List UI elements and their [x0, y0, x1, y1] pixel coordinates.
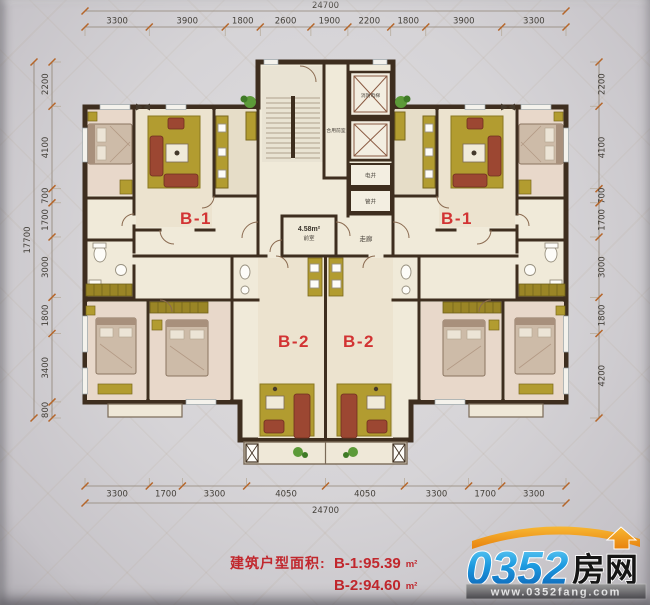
b2-area-value: B-2:94.60m² — [334, 577, 417, 594]
logo-arrow-icon — [607, 527, 636, 549]
floor-plan-photo: 消防电梯 电井 管井 合用前室 走廊 4.58m² 前室 — [0, 0, 650, 605]
dim-label: 1800 — [598, 305, 608, 327]
logo-name: 房网 — [572, 551, 638, 588]
dim-label: 1700 — [474, 490, 496, 500]
dim-label: 3300 — [204, 490, 226, 500]
floor-plan-drawing: 消防电梯 电井 管井 合用前室 走廊 4.58m² 前室 — [0, 0, 650, 605]
dim-label: 1700 — [598, 209, 608, 231]
dim-label: 2200 — [598, 73, 608, 95]
dim-label: 17700 — [23, 226, 33, 253]
area-caption: 建筑户型面积: — [230, 555, 326, 571]
dim-label: 1700 — [41, 209, 51, 231]
plant-icon — [241, 96, 248, 103]
dim-label: 1800 — [232, 17, 254, 27]
dim-label: 3300 — [426, 490, 448, 500]
dim-label: 1800 — [41, 305, 51, 327]
balcony — [108, 404, 182, 417]
logo: 0352 房网 www.0352fang.com — [466, 526, 646, 599]
logo-url: www.0352fang.com — [490, 587, 621, 599]
passenger-elevator-shaft — [350, 120, 391, 160]
dim-label: 3400 — [41, 357, 51, 379]
dim-label: 1800 — [397, 17, 419, 27]
dim-label: 800 — [41, 402, 51, 418]
fire-elevator-shaft: 消防电梯 — [350, 72, 391, 116]
footer-area-text: 建筑户型面积: B-1:95.39m² B-2:94.60m² — [230, 555, 417, 594]
dim-label: 3300 — [106, 490, 128, 500]
dim-label: 2200 — [358, 17, 380, 27]
pipe-shaft-label: 管井 — [365, 198, 377, 206]
fire-elevator-label: 消防电梯 — [361, 92, 380, 99]
vestibule-area-label: 4.58m² — [298, 226, 321, 233]
unit-label-b2-right: B-2 — [343, 332, 375, 351]
unit-label-b2-left: B-2 — [278, 332, 310, 351]
dim-label: 4200 — [598, 365, 608, 387]
shared-vestibule-label: 合用前室 — [326, 127, 345, 134]
corridor-label: 走廊 — [360, 234, 374, 243]
dim-label: 1700 — [155, 490, 177, 500]
dim-label: 3300 — [106, 17, 128, 27]
pipe-shaft: 管井 — [350, 190, 391, 212]
dim-label: 700 — [41, 188, 51, 204]
electric-shaft-label: 电井 — [365, 172, 377, 180]
unit-label-b1-left: B-1 — [180, 209, 212, 228]
dim-label: 1900 — [319, 17, 341, 27]
electric-shaft: 电井 — [350, 164, 391, 186]
unit-label-b1-right: B-1 — [441, 209, 473, 228]
dim-label: 3900 — [453, 17, 475, 27]
plant-icon — [343, 452, 349, 458]
plant-icon — [302, 452, 308, 458]
dim-label: 4100 — [41, 137, 51, 159]
plant-icon — [348, 447, 358, 457]
dim-label: 4100 — [598, 137, 608, 159]
dim-label: 24700 — [312, 1, 339, 11]
plant-icon — [293, 447, 303, 457]
b1-area-value: B-1:95.39m² — [334, 555, 417, 572]
dim-label: 2200 — [41, 73, 51, 95]
dim-label: 2600 — [275, 17, 297, 27]
dim-label: 3000 — [598, 256, 608, 278]
balcony-center — [244, 442, 407, 464]
dim-label: 3000 — [41, 256, 51, 278]
dim-label: 700 — [598, 188, 608, 204]
dim-label: 4050 — [354, 490, 376, 500]
sofa-set — [148, 116, 200, 188]
vestibule-label: 前室 — [303, 234, 315, 242]
dim-label: 3900 — [176, 17, 198, 27]
dim-label: 4050 — [275, 490, 297, 500]
dim-label: 3300 — [523, 17, 545, 27]
dim-label: 3300 — [523, 490, 545, 500]
dim-label: 24700 — [312, 506, 339, 516]
